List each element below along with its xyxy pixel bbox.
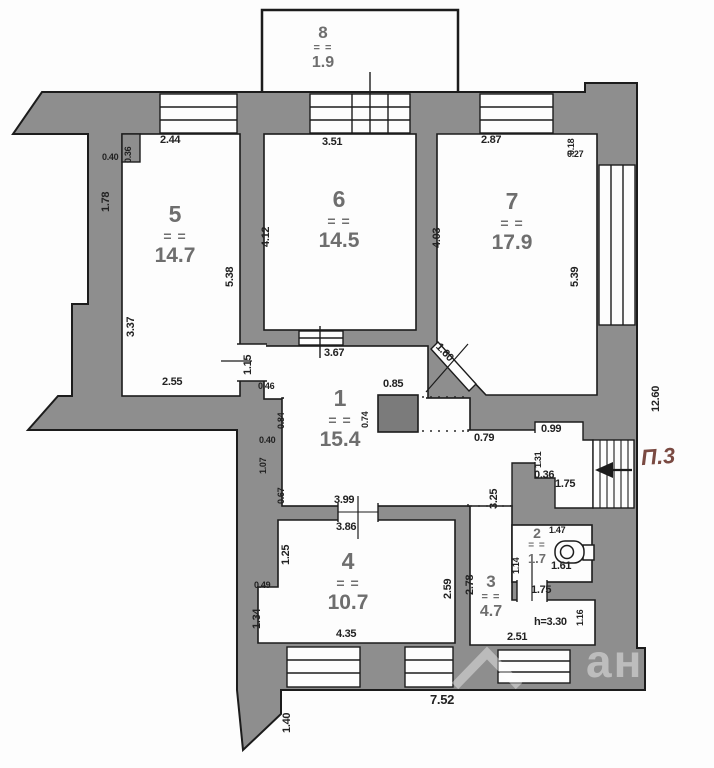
dim-jog-049: 0.49	[254, 580, 270, 590]
dim-wc-114: 1.14	[511, 558, 521, 574]
dim-room4-bottom: 4.35	[336, 628, 356, 640]
dim-jog-027: 0.27	[567, 149, 583, 159]
dim-overall-bottom: 7.52	[430, 692, 454, 707]
dim-door-115: 1.15	[242, 355, 254, 375]
column	[378, 395, 418, 432]
dim-room7-right: 5.39	[569, 267, 581, 287]
dim-jog-046: 0.46	[258, 381, 274, 391]
room-2-label: 2 = = 1.7	[524, 526, 550, 565]
room-6-area: 14.5	[319, 230, 360, 251]
floor-plan: 2.44 3.51 2.87 0.18 0.27 0.40 0.36 1.78 …	[0, 0, 714, 768]
dim-wc-147: 1.47	[549, 525, 565, 535]
room-5-marks: = =	[163, 229, 186, 243]
room-1-area: 15.4	[320, 429, 361, 450]
dim-spike-140: 1.40	[281, 713, 293, 733]
dim-room3-bottom: 2.51	[507, 631, 527, 643]
room-7-area: 17.9	[492, 232, 533, 253]
dim-overall-right: 12.60	[650, 386, 662, 412]
window-room5	[160, 94, 237, 133]
watermark-text: ан	[586, 634, 643, 688]
dim-wc-door-175: 1.75	[531, 584, 551, 596]
room-3-area: 4.7	[480, 604, 502, 620]
stairs	[593, 440, 634, 508]
room-6-marks: = =	[327, 214, 350, 228]
dim-column-085: 0.85	[383, 378, 403, 390]
dim-lobby-131: 1.31	[533, 452, 543, 468]
room-1-marks: = =	[328, 413, 351, 427]
dim-passage-325: 3.25	[488, 489, 500, 509]
room-7-interior	[437, 134, 597, 395]
room-5-label: 5 = = 14.7	[144, 203, 206, 266]
dim-room4-right: 2.59	[442, 579, 454, 599]
note-ceiling-height: h=3.30	[534, 616, 567, 628]
room-6-number: 6	[333, 188, 346, 211]
dim-opening-079: 0.79	[474, 432, 494, 444]
room-3-marks: = =	[482, 592, 501, 603]
room-3-label: 3 = = 4.7	[466, 573, 516, 620]
room-5-number: 5	[169, 203, 182, 226]
room-4-marks: = =	[336, 576, 359, 590]
dim-room7-left: 4.03	[431, 228, 443, 248]
room-7-marks: = =	[500, 216, 523, 230]
window-room7	[480, 94, 553, 133]
window-room4-right	[405, 647, 453, 687]
dim-top-room7: 2.87	[481, 134, 501, 146]
dim-left-178: 1.78	[100, 192, 112, 212]
room-1-number: 1	[334, 387, 347, 410]
window-stairwell	[599, 165, 635, 325]
room-2-marks: = =	[528, 541, 545, 551]
room-6-label: 6 = = 14.5	[308, 188, 370, 251]
dim-lobby-099: 0.99	[541, 423, 561, 435]
stair-exit-label: П.3	[640, 443, 676, 471]
dim-jog-067: 0.67	[276, 488, 286, 504]
dim-wc-161: 1.61	[551, 560, 571, 572]
dim-room6-bottom: 3.67	[324, 347, 344, 359]
room-2-area: 1.7	[528, 552, 546, 565]
room-7-number: 7	[506, 190, 519, 213]
room-4-label: 4 = = 10.7	[317, 550, 379, 613]
dim-left-337: 3.37	[125, 317, 137, 337]
dim-room6-left: 4.12	[260, 227, 272, 247]
room-8-marks: = =	[314, 43, 333, 54]
room-7-label: 7 = = 17.9	[481, 190, 543, 253]
dim-room4-125: 1.25	[280, 545, 292, 565]
dim-top-room6: 3.51	[322, 136, 342, 148]
dim-room5-bottom: 2.55	[162, 376, 182, 388]
patch	[466, 432, 472, 504]
dim-jog-040b: 0.40	[259, 435, 275, 445]
dim-lobby-036: 0.36	[534, 469, 554, 481]
balcony-outline	[262, 10, 458, 94]
dim-jog-084: 0.84	[276, 413, 286, 429]
dim-room4-399: 3.99	[334, 494, 354, 506]
room-2-number: 2	[533, 526, 541, 540]
dim-jog-107: 1.07	[258, 458, 268, 474]
dim-jog-040a: 0.40	[102, 152, 118, 162]
room-4-area: 10.7	[328, 592, 369, 613]
dim-room4-386: 3.86	[336, 521, 356, 533]
room-8-label: 8 = = 1.9	[293, 24, 353, 71]
dim-room3-116: 1.16	[575, 610, 585, 626]
room-5-area: 14.7	[155, 245, 196, 266]
room-4-number: 4	[342, 550, 355, 573]
window-room4-left	[287, 647, 360, 687]
room-3-number: 3	[486, 573, 495, 590]
dim-room4-134: 1.34	[251, 609, 263, 629]
room-1-label: 1 = = 15.4	[309, 387, 371, 450]
dim-lobby-175: 1.75	[555, 478, 575, 490]
room-8-area: 1.9	[312, 55, 334, 71]
dim-jog-036a: 0.36	[123, 147, 133, 163]
dim-room5-right: 5.38	[224, 267, 236, 287]
room-8-number: 8	[318, 24, 327, 41]
dim-top-room5: 2.44	[160, 134, 180, 146]
